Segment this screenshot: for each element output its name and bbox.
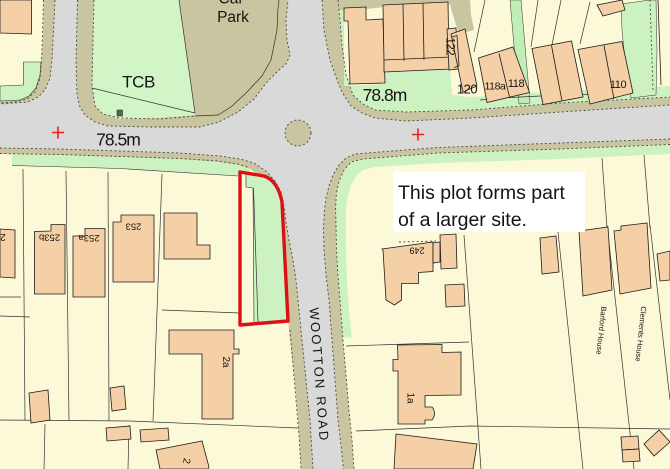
svg-text:122: 122: [444, 37, 456, 55]
svg-text:253a: 253a: [78, 232, 100, 243]
svg-text:253: 253: [126, 221, 142, 232]
svg-text:78.5m: 78.5m: [96, 130, 140, 150]
svg-text:2a: 2a: [220, 356, 231, 368]
svg-text:TCB: TCB: [122, 73, 155, 92]
svg-text:1a: 1a: [405, 392, 416, 404]
svg-text:2: 2: [0, 231, 6, 242]
svg-text:78.8m: 78.8m: [363, 85, 407, 105]
svg-text:249: 249: [409, 245, 424, 255]
svg-text:of a larger site.: of a larger site.: [398, 209, 527, 231]
svg-text:110: 110: [610, 79, 627, 91]
svg-text:118a: 118a: [485, 81, 507, 93]
svg-text:Car: Car: [219, 0, 244, 8]
svg-text:Park: Park: [217, 9, 249, 26]
svg-text:120: 120: [457, 82, 477, 97]
svg-text:253b: 253b: [39, 232, 60, 243]
svg-text:This plot forms part: This plot forms part: [398, 182, 565, 204]
svg-text:118: 118: [508, 78, 525, 90]
